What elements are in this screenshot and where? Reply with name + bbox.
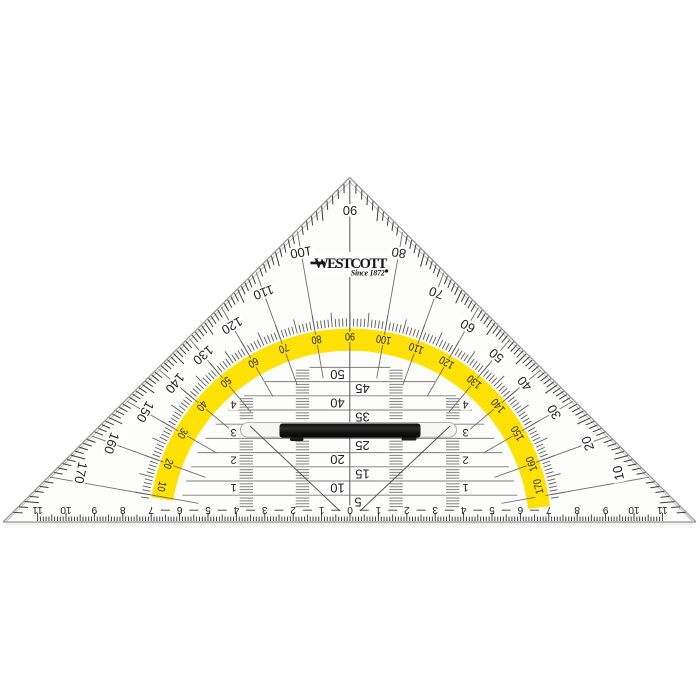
svg-text:11: 11 xyxy=(32,504,43,515)
svg-text:4: 4 xyxy=(233,504,239,515)
svg-text:80: 80 xyxy=(310,332,322,346)
svg-text:90: 90 xyxy=(345,330,355,342)
svg-text:0: 0 xyxy=(347,504,353,515)
svg-text:2: 2 xyxy=(462,453,468,465)
svg-text:9: 9 xyxy=(602,504,608,515)
svg-text:6: 6 xyxy=(176,504,182,515)
svg-text:11: 11 xyxy=(657,504,668,515)
svg-text:3: 3 xyxy=(432,504,438,515)
svg-text:10: 10 xyxy=(628,504,640,515)
svg-text:50: 50 xyxy=(330,367,344,382)
svg-text:25: 25 xyxy=(355,438,369,453)
svg-text:5: 5 xyxy=(205,504,211,515)
svg-text:8: 8 xyxy=(120,504,126,515)
svg-text:1: 1 xyxy=(462,481,468,493)
svg-text:5: 5 xyxy=(489,504,495,515)
svg-text:4: 4 xyxy=(462,398,468,410)
svg-text:4: 4 xyxy=(460,504,466,515)
svg-text:1: 1 xyxy=(318,504,324,515)
svg-text:2: 2 xyxy=(404,504,410,515)
svg-text:9: 9 xyxy=(91,504,97,515)
svg-text:8: 8 xyxy=(574,504,580,515)
svg-text:3: 3 xyxy=(462,426,468,438)
svg-text:40: 40 xyxy=(330,395,344,410)
svg-text:80: 80 xyxy=(390,244,407,261)
svg-text:4: 4 xyxy=(230,398,236,410)
svg-text:5: 5 xyxy=(354,495,361,510)
svg-text:20: 20 xyxy=(330,452,344,467)
svg-text:7: 7 xyxy=(148,504,154,515)
svg-text:2: 2 xyxy=(230,453,236,465)
svg-text:3: 3 xyxy=(230,426,236,438)
svg-text:15: 15 xyxy=(355,466,369,481)
svg-text:3: 3 xyxy=(262,504,268,515)
svg-text:10: 10 xyxy=(330,480,344,495)
svg-text:7: 7 xyxy=(546,504,552,515)
svg-text:1: 1 xyxy=(230,481,236,493)
svg-text:10: 10 xyxy=(609,464,627,481)
svg-text:6: 6 xyxy=(517,504,523,515)
svg-text:1: 1 xyxy=(375,504,381,515)
svg-text:90: 90 xyxy=(343,203,357,218)
svg-text:10: 10 xyxy=(60,504,72,515)
svg-text:Since 1872: Since 1872 xyxy=(351,269,385,278)
svg-text:45: 45 xyxy=(355,381,369,396)
svg-text:2: 2 xyxy=(290,504,296,515)
